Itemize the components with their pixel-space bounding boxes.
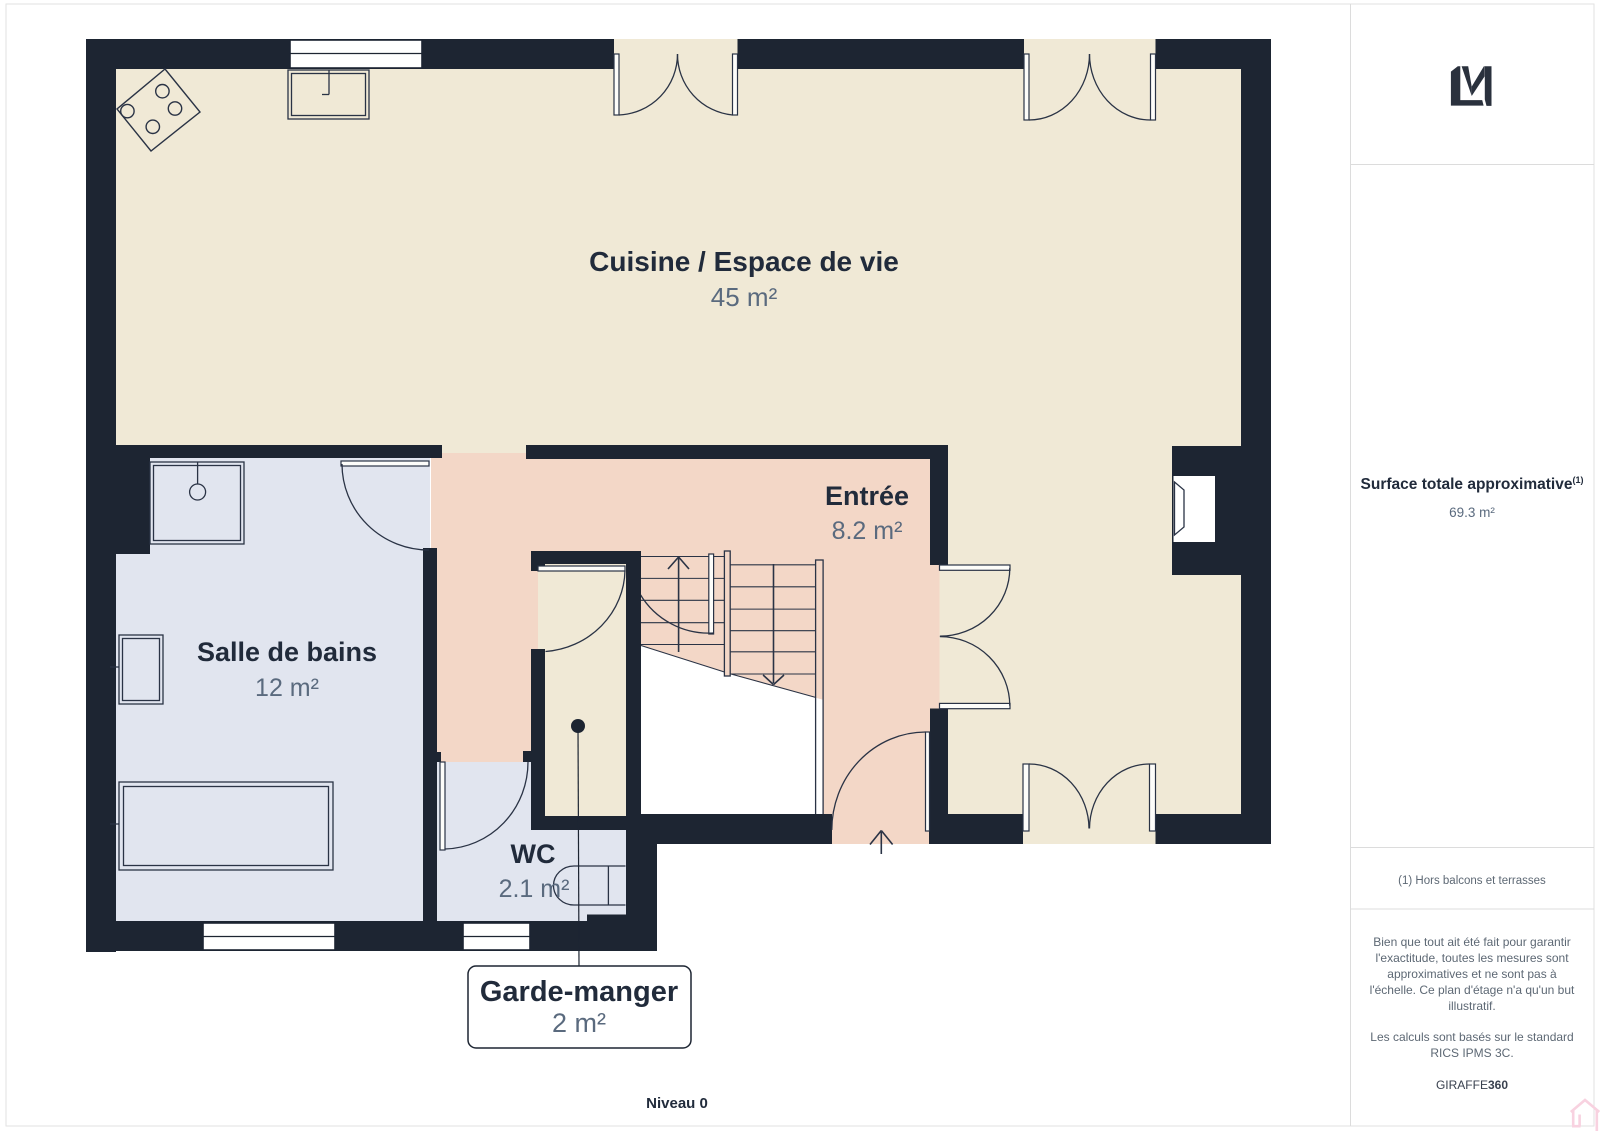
svg-text:2 m²: 2 m² — [552, 1008, 606, 1038]
svg-text:Niveau 0: Niveau 0 — [646, 1095, 708, 1112]
svg-text:12 m²: 12 m² — [255, 674, 319, 702]
svg-text:Les calculs sont basés sur le: Les calculs sont basés sur le standard — [1370, 1030, 1573, 1044]
svg-text:45 m²: 45 m² — [711, 282, 778, 312]
svg-text:GIRAFFE360: GIRAFFE360 — [1436, 1078, 1508, 1092]
svg-text:69.3 m²: 69.3 m² — [1449, 505, 1495, 520]
svg-text:(1) Hors balcons et terrasses: (1) Hors balcons et terrasses — [1398, 875, 1546, 887]
svg-text:Entrée: Entrée — [825, 481, 909, 511]
svg-text:RICS IPMS 3C.: RICS IPMS 3C. — [1430, 1046, 1513, 1060]
svg-text:Salle de bains: Salle de bains — [197, 637, 377, 667]
svg-text:approximatives et ne sont pas: approximatives et ne sont pas à — [1387, 967, 1557, 981]
svg-text:WC: WC — [511, 839, 556, 869]
svg-text:illustratif.: illustratif. — [1448, 999, 1495, 1013]
svg-text:Garde-manger: Garde-manger — [480, 976, 678, 1008]
svg-text:l'échelle. Ce plan d'étage n'a: l'échelle. Ce plan d'étage n'a qu'un but — [1370, 983, 1575, 997]
svg-text:l'exactitude, toutes les mesur: l'exactitude, toutes les mesures sont — [1375, 951, 1569, 965]
svg-text:2.1 m²: 2.1 m² — [499, 875, 570, 903]
svg-text:Cuisine / Espace de vie: Cuisine / Espace de vie — [589, 246, 899, 277]
svg-text:Bien que tout ait été fait pou: Bien que tout ait été fait pour garantir — [1373, 935, 1570, 949]
svg-text:8.2 m²: 8.2 m² — [832, 517, 903, 545]
svg-text:Surface totale approximative(1: Surface totale approximative(1) — [1361, 475, 1584, 493]
